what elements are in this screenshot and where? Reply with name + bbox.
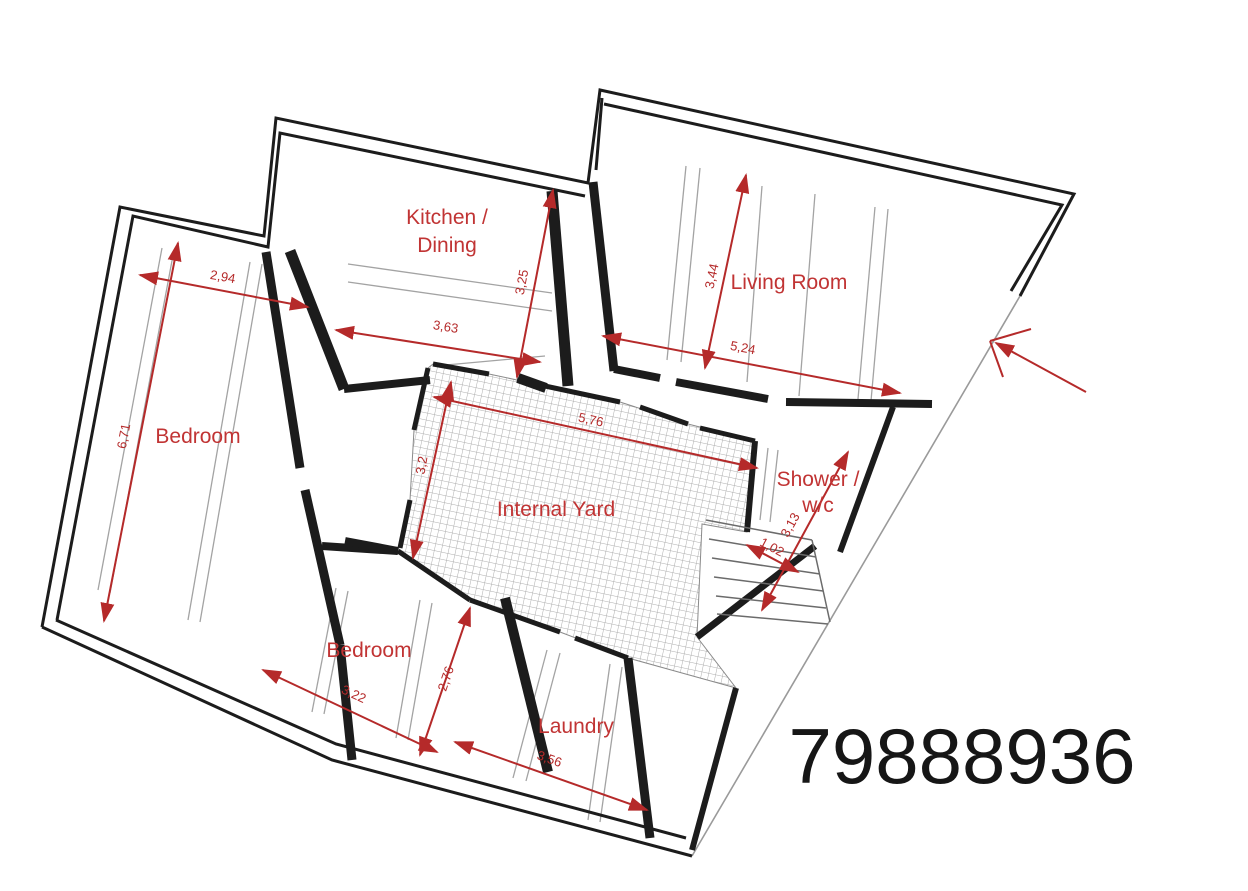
stair-step — [717, 614, 828, 624]
dimension-line — [336, 330, 540, 362]
room-label-shower-line2: w/c — [801, 494, 834, 517]
stair-rail — [812, 540, 830, 622]
dimension-label: 2,94 — [209, 267, 237, 286]
guide-line — [408, 603, 432, 740]
floor-plan-page: 2,94 6,71 3,63 3,25 3,44 5,24 5,76 3,2 3… — [0, 0, 1248, 891]
room-label-bedroom-lower: Bedroom — [326, 639, 411, 662]
entrance-arrow-barb-upper — [990, 329, 1031, 341]
floor-plan-drawing: 2,94 6,71 3,63 3,25 3,44 5,24 5,76 3,2 3… — [0, 0, 1248, 891]
room-label-shower-line1: Shower / — [777, 468, 860, 491]
stair-step — [712, 558, 820, 574]
wall-bedroom-right-upper — [266, 252, 300, 468]
dimension-label: 6,71 — [114, 422, 134, 450]
room-label-bedroom-left: Bedroom — [155, 425, 240, 448]
guide-line — [760, 448, 768, 520]
dimension-label: 3,56 — [535, 747, 564, 770]
guide-line — [667, 166, 686, 360]
room-label-living-room: Living Room — [731, 271, 848, 294]
entrance-arrow-icon — [990, 329, 1086, 392]
dimension-label: 3,63 — [432, 317, 459, 336]
wall-stairs-bottom — [697, 546, 815, 637]
wall-bedroom-right-lower — [305, 490, 340, 645]
wall-shower-top — [786, 402, 932, 404]
room-label-kitchen-line2: Dining — [417, 234, 477, 257]
dimension-label: 5,24 — [729, 338, 757, 358]
room-label-kitchen-line1: Kitchen / — [406, 206, 488, 229]
listing-number: 79888936 — [788, 712, 1135, 800]
dimension-label: 3,25 — [512, 268, 532, 296]
guide-line — [600, 667, 622, 822]
wall-kitchen-left — [290, 251, 344, 389]
guide-line — [871, 209, 888, 401]
dimension-label: 3,13 — [777, 510, 802, 539]
wall-hall-kitchen — [344, 380, 430, 389]
entrance-arrow-shaft — [996, 343, 1086, 392]
dimension-label: 3,2 — [413, 455, 431, 475]
room-label-internal-yard: Internal Yard — [497, 498, 615, 521]
guide-line — [858, 207, 875, 399]
dimension-label: 1,02 — [757, 534, 786, 559]
guide-line — [681, 168, 700, 362]
guide-line — [799, 194, 815, 396]
wall-living-left — [593, 182, 614, 371]
wall-kitchen-right — [552, 191, 568, 386]
room-label-laundry: Laundry — [538, 715, 614, 738]
dimension-label: 3,44 — [702, 262, 722, 290]
wall-living-bottom-stub — [614, 369, 660, 378]
dimension-label: 2,76 — [435, 664, 457, 693]
guide-line — [98, 248, 162, 590]
wall-living-bottom — [676, 382, 768, 399]
wall-laundry-right — [628, 658, 650, 838]
guide-line — [396, 600, 420, 738]
wall-yard-tongue-right — [692, 688, 736, 850]
wall-bedroom-right-base — [340, 645, 352, 760]
